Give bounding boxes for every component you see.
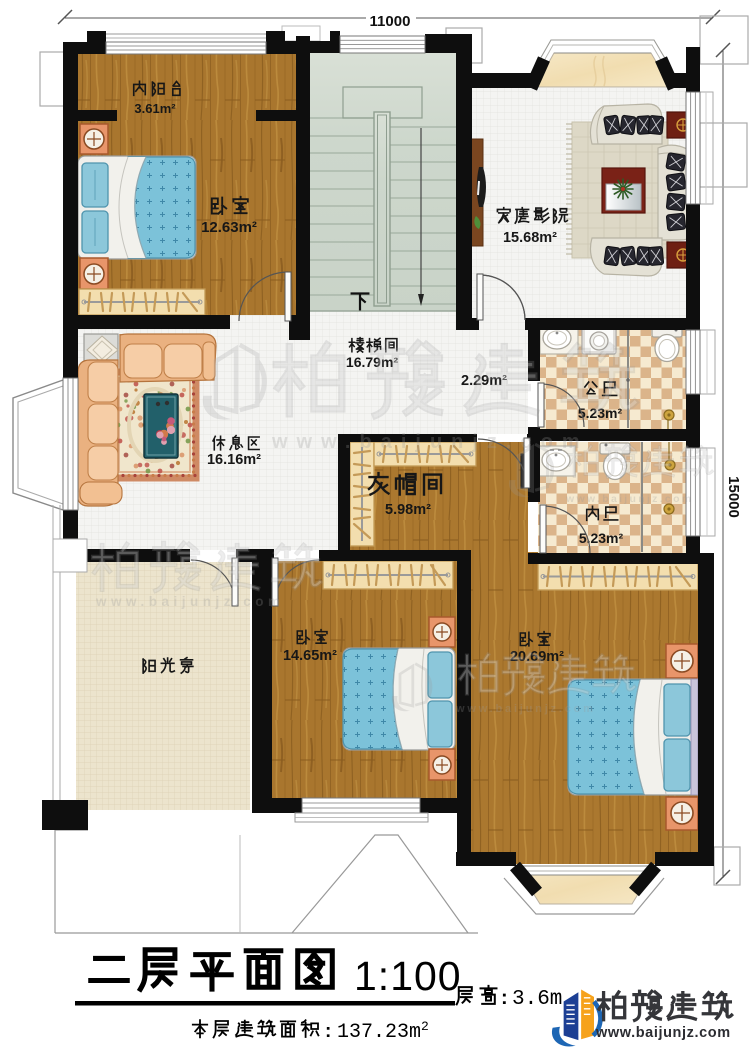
svg-text:www.baijunjz.com: www.baijunjz.com [271, 431, 589, 453]
svg-text::: : [325, 1021, 331, 1042]
svg-text:www.baijunjz.com: www.baijunjz.com [565, 493, 693, 505]
svg-text:15000: 15000 [725, 476, 742, 518]
svg-text:3.61m²: 3.61m² [134, 101, 176, 116]
svg-text:www.baijunjz.com: www.baijunjz.com [95, 594, 285, 609]
svg-text::: : [501, 987, 508, 1009]
svg-text:12.63m²: 12.63m² [201, 219, 257, 236]
svg-text:137.23m2: 137.23m2 [337, 1019, 429, 1044]
svg-text:1:100: 1:100 [354, 953, 462, 999]
svg-text:15.68m²: 15.68m² [503, 230, 557, 246]
svg-text:11000: 11000 [370, 13, 411, 30]
svg-text:16.16m²: 16.16m² [207, 452, 261, 468]
svg-text:www.baijunjz.com: www.baijunjz.com [455, 703, 596, 715]
svg-text:3.6m: 3.6m [512, 988, 562, 1011]
svg-text:14.65m²: 14.65m² [283, 648, 337, 664]
svg-text:16.79m²: 16.79m² [346, 354, 398, 370]
svg-text:www.baijunjz.com: www.baijunjz.com [595, 1025, 731, 1041]
svg-text:5.98m²: 5.98m² [385, 502, 431, 518]
